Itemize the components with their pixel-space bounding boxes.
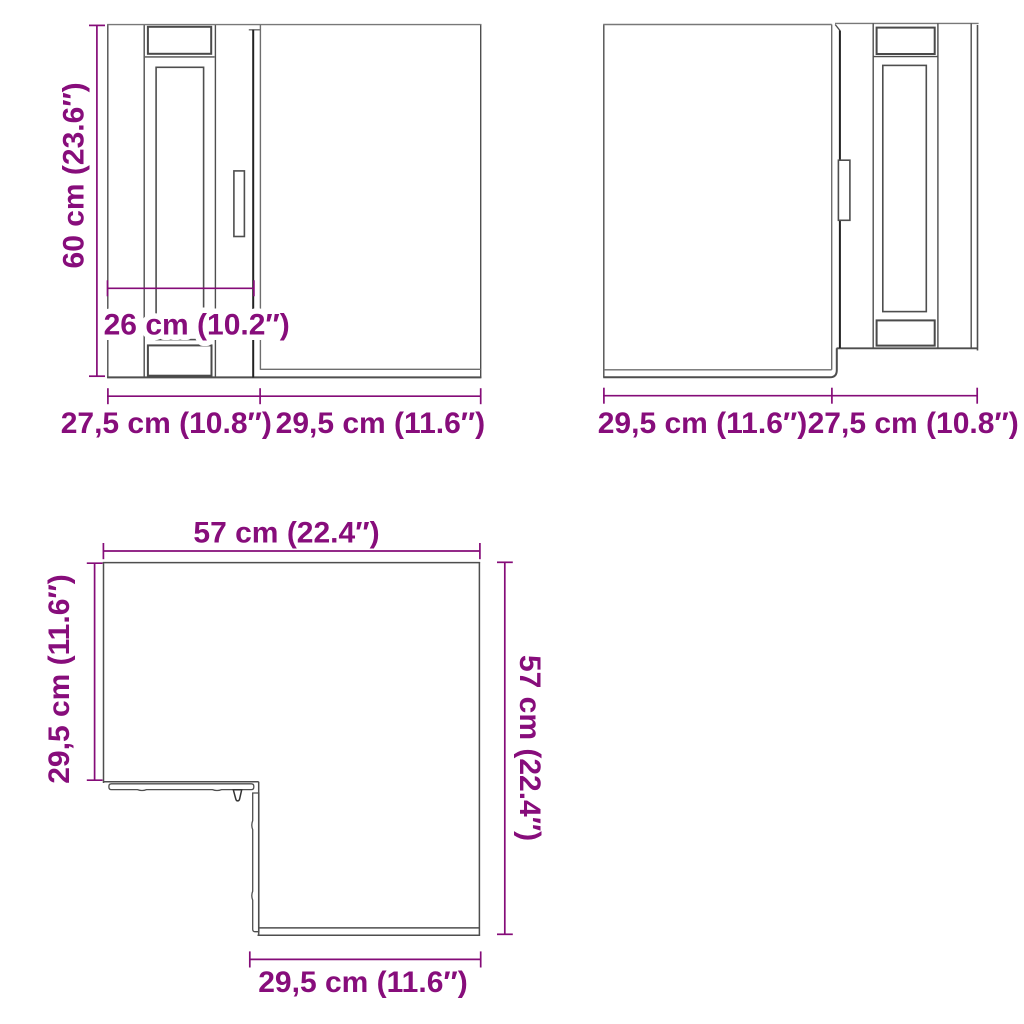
svg-text:29,5 cm (11.6″): 29,5 cm (11.6″): [598, 407, 808, 440]
svg-text:29,5 cm (11.6″): 29,5 cm (11.6″): [276, 407, 486, 440]
svg-text:27,5 cm (10.8″): 27,5 cm (10.8″): [61, 407, 272, 440]
svg-text:27,5 cm (10.8″): 27,5 cm (10.8″): [808, 407, 1019, 440]
svg-text:57 cm (22.4″): 57 cm (22.4″): [513, 655, 546, 841]
svg-text:29,5 cm (11.6″): 29,5 cm (11.6″): [258, 966, 468, 999]
svg-text:57 cm (22.4″): 57 cm (22.4″): [193, 516, 379, 549]
svg-text:60 cm (23.6″): 60 cm (23.6″): [58, 82, 91, 268]
svg-text:29,5 cm (11.6″): 29,5 cm (11.6″): [43, 574, 76, 784]
svg-text:26 cm (10.2″): 26 cm (10.2″): [104, 309, 290, 342]
